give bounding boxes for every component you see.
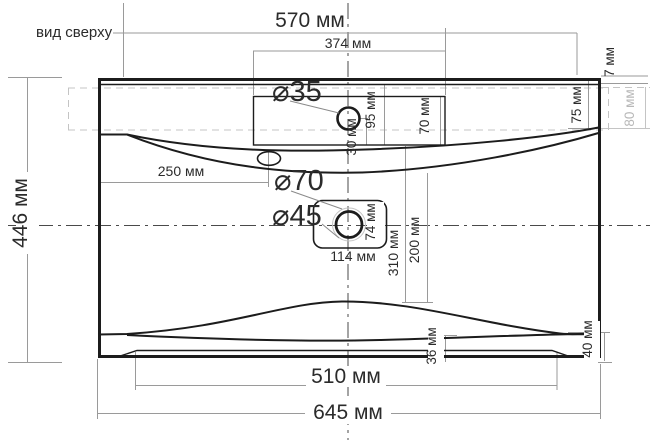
dia-label-45: ⌀45 [272, 200, 322, 232]
dim-label-374: 374 мм [325, 35, 372, 51]
technical-drawing-sink-top-view: вид сверху 570 мм 374 мм 250 мм 446 мм 5… [0, 0, 655, 443]
dim-label-80: 80 мм [622, 89, 637, 126]
dim-label-310: 310 мм [385, 230, 401, 277]
dim-label-30: 30 мм [344, 118, 359, 155]
basin-lower-curve-outer [127, 334, 599, 341]
dim-label-75: 75 мм [569, 86, 584, 123]
dim-label-446: 446 мм [9, 178, 32, 248]
dim-label-36: 36 мм [424, 327, 439, 364]
drain-outer-circle [333, 208, 366, 241]
dim-label-95: 95 мм [363, 91, 378, 128]
view-title: вид сверху [36, 24, 113, 41]
dia-label-35: ⌀35 [272, 76, 322, 108]
drain-hole [336, 212, 362, 238]
dia-label-70: ⌀70 [274, 165, 324, 197]
drawing-svg: вид сверху 570 мм 374 мм 250 мм 446 мм 5… [0, 0, 655, 443]
dim-label-250: 250 мм [158, 163, 205, 179]
dim-label-74: 74 мм [363, 203, 378, 240]
dim-label-645: 645 мм [313, 401, 383, 424]
dim-label-7: 7 мм [602, 47, 617, 77]
dim-label-570: 570 мм [275, 9, 345, 32]
dim-label-114: 114 мм [330, 248, 375, 264]
dim-label-40: 40 мм [580, 320, 595, 357]
dim-label-510: 510 мм [311, 365, 381, 388]
dim-label-70: 70 мм [417, 97, 432, 134]
dim-label-200: 200 мм [406, 217, 422, 264]
